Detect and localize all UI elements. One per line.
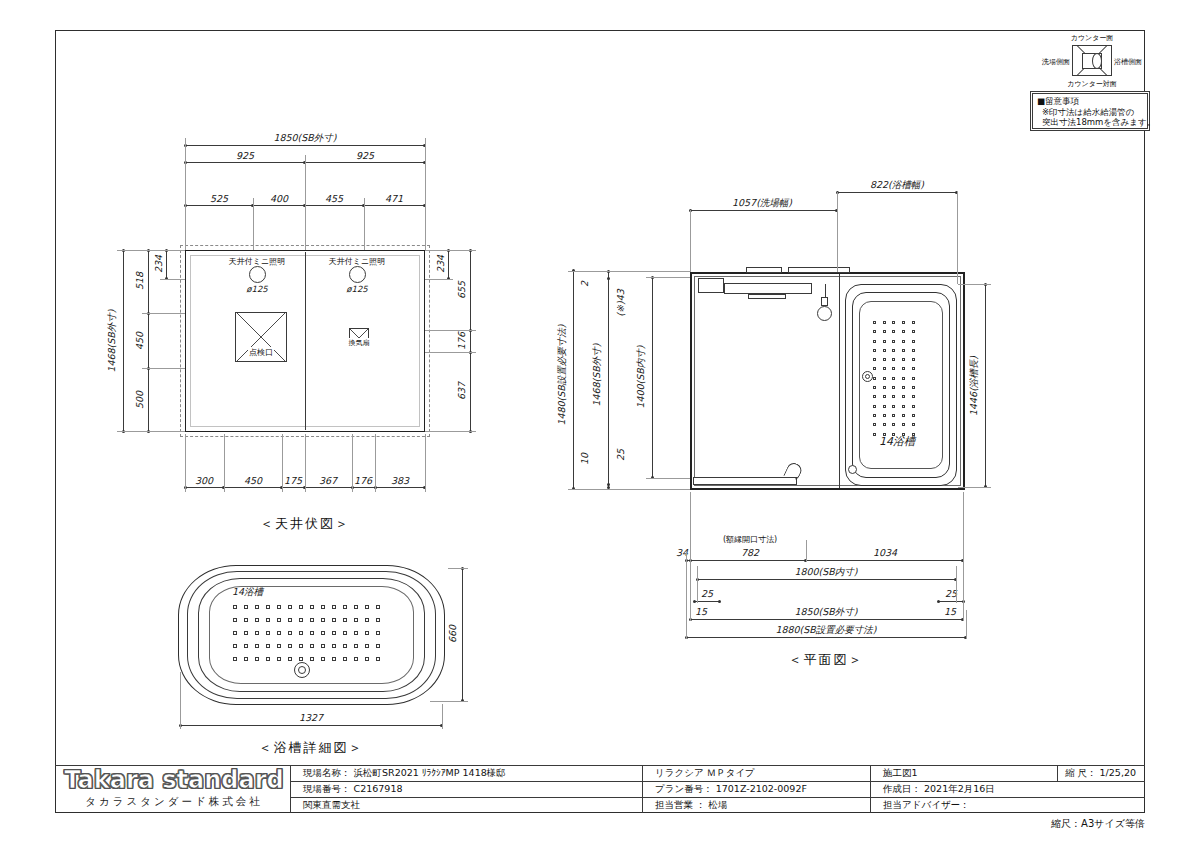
site-name-label: 現場名称： bbox=[303, 767, 351, 778]
site-no-value: C2167918 bbox=[354, 783, 403, 794]
dim-label: 471 bbox=[385, 193, 403, 204]
scale-cell: 縮 尺： 1/25,20 bbox=[1061, 765, 1149, 781]
ceiling-light-icon-right bbox=[349, 266, 366, 283]
door-track bbox=[693, 477, 797, 485]
scale-label: 縮 尺： bbox=[1065, 767, 1097, 778]
dim-label: 15 bbox=[695, 606, 707, 617]
extension-line bbox=[117, 431, 185, 432]
date-value: 2021年2月16日 bbox=[924, 783, 995, 794]
dim-label: 1468(SB外寸) bbox=[106, 309, 119, 372]
dim-label: 1800(SB内寸) bbox=[794, 566, 857, 579]
site-no-label: 現場番号： bbox=[303, 783, 351, 794]
counter bbox=[724, 283, 812, 294]
dim-label: 655 bbox=[456, 281, 467, 299]
dim-label: 925 bbox=[236, 150, 254, 161]
dim-label: 1850(SB外寸) bbox=[273, 132, 336, 145]
dim-label: 300 bbox=[195, 475, 213, 486]
extension-line bbox=[142, 313, 185, 314]
dim-label: 782 bbox=[741, 547, 759, 558]
shower-bracket bbox=[821, 297, 828, 306]
ceiling-light-dia-left: ø125 bbox=[246, 284, 267, 294]
date-label: 作成日： bbox=[883, 783, 921, 794]
dim-label: 925 bbox=[356, 150, 374, 161]
tub-drain-center bbox=[298, 666, 306, 674]
inspection-hatch-label: 点検口 bbox=[248, 347, 274, 358]
tub-detail-label: 14浴槽 bbox=[232, 586, 263, 599]
dim-line bbox=[573, 270, 574, 489]
orientation-left-label: 洗場側面 bbox=[1032, 57, 1070, 67]
dim-label: 383 bbox=[391, 475, 409, 486]
dim-line bbox=[837, 192, 957, 193]
wall-bump bbox=[788, 267, 850, 273]
extension-line bbox=[646, 478, 690, 479]
ceiling-plan-caption: ＜天井伏図＞ bbox=[260, 515, 350, 533]
ceiling-light-dia-right: ø125 bbox=[346, 284, 367, 294]
dim-line bbox=[985, 284, 986, 487]
extension-line bbox=[305, 155, 306, 250]
extension-line bbox=[142, 368, 185, 369]
dim-label: 1880(SB設置必要寸法) bbox=[775, 624, 876, 637]
extension-line bbox=[442, 704, 443, 729]
advisor-label: 担当アドバイザー： bbox=[883, 799, 970, 810]
site-name-cell: 現場名称： 浜松町SR2021 ﾘﾗｸｼｱMP 1418様邸 bbox=[296, 765, 649, 781]
extension-line bbox=[180, 672, 181, 729]
dim-label: 1034 bbox=[873, 547, 897, 558]
extension-line bbox=[282, 434, 283, 492]
extension-line bbox=[375, 434, 376, 492]
dim-label: 175 bbox=[284, 475, 302, 486]
dim-label: 450 bbox=[244, 475, 262, 486]
extension-line bbox=[425, 352, 476, 353]
dim-label: 660 bbox=[447, 625, 458, 643]
company-name: タカラスタンダード株式会社 bbox=[60, 795, 288, 809]
notice-line2: 突出寸法18mmを含みます。 bbox=[1042, 117, 1155, 129]
extension-line bbox=[425, 434, 426, 492]
dim-label: 176 bbox=[456, 332, 467, 350]
counter-tab bbox=[748, 294, 786, 299]
dim-label: 234 bbox=[435, 255, 446, 273]
scale-value: 1/25,20 bbox=[1100, 767, 1136, 778]
shower-head-icon bbox=[817, 306, 832, 321]
sheet-cell: 施工図1 bbox=[876, 765, 1058, 781]
extension-line bbox=[185, 434, 186, 492]
dim-line bbox=[686, 637, 966, 638]
plan-no-label: プラン番号： bbox=[655, 783, 713, 794]
extension-line bbox=[568, 489, 690, 490]
extension-line bbox=[425, 330, 476, 331]
dim-label: 1850(SB外寸) bbox=[794, 606, 857, 619]
dim-line bbox=[690, 210, 837, 211]
extension-line bbox=[966, 610, 967, 639]
branch-value: 関東直需支社 bbox=[303, 799, 360, 810]
dim-label: 1327 bbox=[299, 712, 323, 723]
extension-line bbox=[160, 279, 185, 280]
extension-line bbox=[963, 492, 964, 621]
extension-line bbox=[958, 487, 991, 488]
sheet-value: 施工図1 bbox=[883, 767, 918, 778]
dim-label: 1480(SB設置必要寸法) bbox=[556, 324, 569, 425]
branch-cell: 関東直需支社 bbox=[296, 797, 649, 813]
dim-label: 637 bbox=[456, 382, 467, 400]
dim-line bbox=[652, 277, 653, 478]
floor-drain bbox=[848, 465, 857, 474]
dim-label: 1468(SB外寸) bbox=[591, 343, 604, 406]
dim-label: 25 bbox=[701, 588, 713, 599]
extension-line bbox=[690, 492, 691, 621]
dim-label: 455 bbox=[325, 193, 343, 204]
extension-line bbox=[837, 192, 838, 272]
extension-line bbox=[364, 198, 365, 250]
bathtub-label: 14浴槽 bbox=[879, 434, 915, 449]
counter-bowl-icon bbox=[1092, 53, 1102, 69]
ceiling-light-icon-left bbox=[249, 266, 266, 283]
extension-line bbox=[117, 250, 185, 251]
extension-line bbox=[425, 279, 453, 280]
sales-value: 松場 bbox=[709, 799, 728, 810]
dim-label: 234 bbox=[153, 255, 164, 273]
dim-label: 525 bbox=[210, 193, 228, 204]
dim-label: 1446(浴槽長) bbox=[968, 356, 981, 416]
tub-detail-caption: ＜浴槽詳細図＞ bbox=[259, 739, 364, 757]
orientation-top-label: カウンター面 bbox=[1071, 33, 1114, 43]
dim-line bbox=[470, 250, 471, 432]
dim-line bbox=[180, 725, 442, 726]
vent-fan-label: 換気扇 bbox=[349, 338, 370, 348]
extension-line bbox=[253, 198, 254, 250]
sales-label: 担当営業 ： bbox=[655, 799, 706, 810]
plan-no-cell: プラン番号： 1701Z-2102-0092F bbox=[648, 781, 871, 797]
extension-line bbox=[305, 434, 306, 492]
extension-line bbox=[430, 701, 468, 702]
drawing-sheet: カウンター面 洗場側面 浴槽側面 カウンター対面 ■留意事項 ※印寸法は給水給湯… bbox=[0, 0, 1200, 849]
extension-line bbox=[956, 566, 957, 603]
extension-line bbox=[568, 271, 690, 272]
extension-line bbox=[425, 250, 476, 251]
dim-line bbox=[608, 271, 609, 488]
dim-line bbox=[166, 250, 167, 279]
dim-line bbox=[462, 568, 463, 701]
wall-bump bbox=[746, 267, 782, 273]
advisor-cell: 担当アドバイザー： bbox=[876, 797, 1152, 813]
dim-label: 15 bbox=[944, 606, 956, 617]
extension-line bbox=[448, 568, 468, 569]
extension-line bbox=[690, 210, 691, 272]
extension-line bbox=[646, 277, 690, 278]
logo-wordmark: Takara standard bbox=[60, 766, 288, 794]
dim-label: 1400(SB内寸) bbox=[635, 345, 648, 408]
dim-line bbox=[690, 619, 963, 620]
dim-label: 400 bbox=[270, 193, 288, 204]
orientation-bottom-label: カウンター対面 bbox=[1067, 79, 1117, 89]
extension-line bbox=[224, 434, 225, 492]
dim-label: 822(浴槽幅) bbox=[870, 179, 924, 192]
dim-line bbox=[185, 145, 425, 146]
extension-line bbox=[425, 431, 476, 432]
dim-label: 1057(洗場幅) bbox=[732, 197, 792, 210]
tub-partition bbox=[839, 274, 840, 488]
dim-label: 25 bbox=[615, 449, 626, 461]
dim-label: (※)43 bbox=[615, 289, 626, 316]
product-cell: リラクシア ＭＰタイプ bbox=[648, 765, 871, 781]
dim-label: 450 bbox=[134, 332, 145, 350]
dim-label: 367 bbox=[319, 475, 337, 486]
dim-label: 2 bbox=[579, 281, 590, 287]
extension-line bbox=[686, 552, 687, 639]
extension-line bbox=[185, 138, 186, 250]
dim-line bbox=[938, 601, 964, 602]
floor-plan-caption: ＜平面図＞ bbox=[789, 651, 864, 669]
sales-cell: 担当営業 ： 松場 bbox=[648, 797, 871, 813]
dim-line bbox=[686, 560, 963, 561]
product-value: リラクシア ＭＰタイプ bbox=[655, 767, 755, 778]
tick bbox=[607, 277, 610, 280]
site-name-value: 浜松町SR2021 ﾘﾗｸｼｱMP 1418様邸 bbox=[354, 767, 506, 778]
opening-dim-label: (額縁開口寸法) bbox=[723, 534, 777, 545]
tick bbox=[607, 483, 610, 486]
extension-line bbox=[957, 192, 958, 284]
tub-antislip-pattern bbox=[233, 605, 380, 661]
extension-line bbox=[958, 284, 991, 285]
dim-label: 500 bbox=[134, 391, 145, 409]
extension-line bbox=[697, 566, 698, 603]
dim-line bbox=[448, 250, 449, 279]
dim-line bbox=[697, 579, 956, 580]
dim-label: 518 bbox=[134, 272, 145, 290]
ceiling-panel-joint bbox=[305, 252, 306, 430]
tub-antislip-pattern bbox=[873, 321, 915, 436]
title-block-line bbox=[290, 765, 291, 813]
date-cell: 作成日： 2021年2月16日 bbox=[876, 781, 1152, 797]
mirror-cabinet bbox=[698, 278, 724, 293]
dim-line bbox=[123, 250, 124, 432]
footer-scale-note: 縮尺：A3サイズ等倍 bbox=[845, 817, 1145, 831]
extension-line bbox=[352, 434, 353, 492]
orientation-right-label: 浴槽側面 bbox=[1114, 57, 1142, 67]
dim-label: 176 bbox=[354, 475, 372, 486]
tub-drain-center bbox=[865, 374, 870, 379]
dim-label: 10 bbox=[579, 453, 590, 465]
company-logo: Takara standard タカラスタンダード株式会社 bbox=[60, 766, 288, 809]
dim-line bbox=[148, 250, 149, 432]
site-no-cell: 現場番号： C2167918 bbox=[296, 781, 649, 797]
extension-line bbox=[806, 540, 807, 562]
plan-no-value: 1701Z-2102-0092F bbox=[716, 783, 807, 794]
extension-line bbox=[425, 138, 426, 250]
